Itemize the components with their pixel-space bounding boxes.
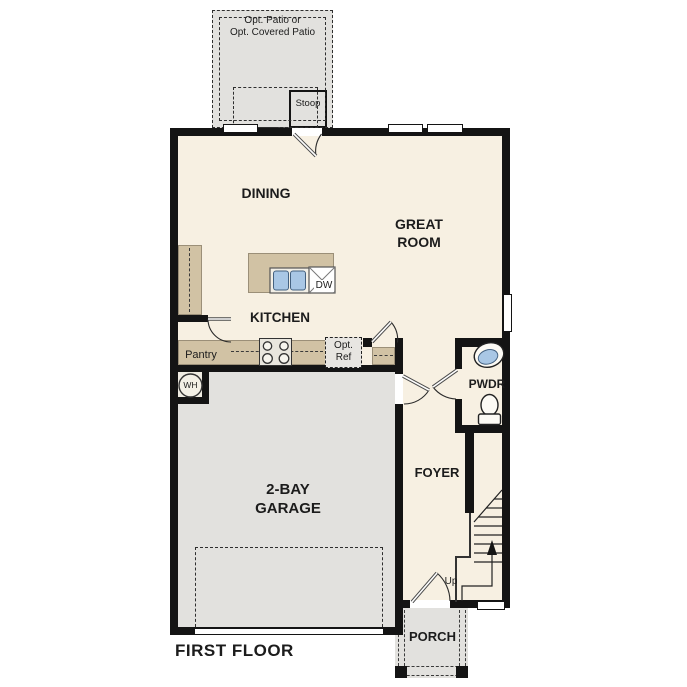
patio-label: Opt. Patio or Opt. Covered Patio	[212, 15, 333, 39]
kitchen-label: KITCHEN	[230, 310, 330, 326]
garage-label: 2-BAY GARAGE	[238, 481, 338, 519]
closet-door	[372, 322, 398, 343]
powder-door	[433, 370, 457, 399]
dining-label: DINING	[216, 185, 316, 202]
pantry-label: Pantry	[180, 349, 222, 362]
island-sink	[270, 268, 310, 293]
foyer-label: FOYER	[387, 465, 487, 481]
stoop-label: Stoop	[289, 98, 327, 109]
powder-label: PWDR	[462, 377, 512, 391]
first-floor-plan: Opt. Patio or Opt. Covered Patio Stoop D…	[0, 0, 687, 687]
powder-sink	[471, 339, 507, 371]
staircase	[462, 490, 502, 601]
great-room-label: GREAT ROOM	[369, 215, 469, 251]
up-label: Up	[441, 576, 461, 588]
stove-burners	[263, 342, 289, 364]
dishwasher-label: DW	[314, 280, 334, 292]
floor-title: FIRST FLOOR	[175, 641, 294, 661]
opt-ref-label: Opt. Ref	[325, 340, 362, 363]
stoop-door	[294, 134, 322, 156]
stair-up-arrow	[487, 540, 497, 555]
water-heater-label: WH	[178, 380, 203, 390]
garage-entry-door	[403, 376, 429, 404]
porch-label: PORCH	[397, 629, 468, 645]
toilet	[479, 395, 501, 425]
pantry-door	[208, 319, 231, 342]
